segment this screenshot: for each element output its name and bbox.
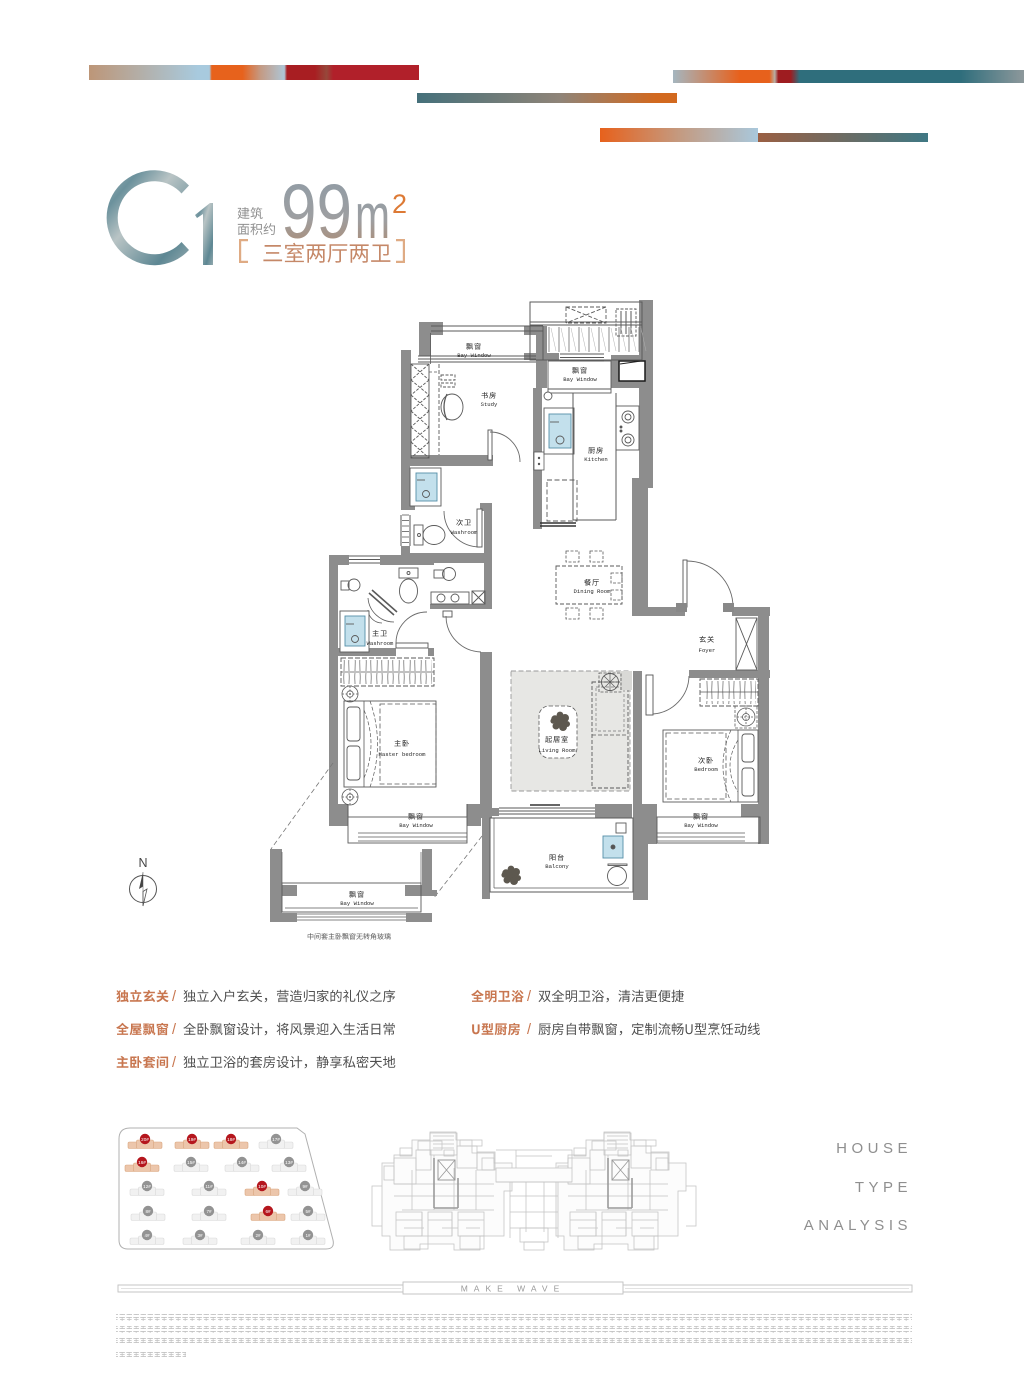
svg-text:Bay Window: Bay Window (340, 900, 374, 907)
svg-text:/: / (527, 989, 532, 1005)
svg-text:2: 2 (392, 189, 407, 219)
svg-text:Balcony: Balcony (545, 863, 569, 870)
svg-text:19#: 19# (188, 1137, 196, 1142)
svg-text:Study: Study (481, 401, 498, 408)
svg-text:Bay Window: Bay Window (563, 376, 597, 383)
svg-text:3#: 3# (197, 1233, 203, 1238)
svg-text:Washroom: Washroom (367, 640, 394, 647)
svg-text:5#: 5# (305, 1209, 311, 1214)
svg-text:99: 99 (281, 169, 352, 255)
svg-text:Master bedroom: Master bedroom (379, 751, 427, 758)
svg-text:Dining Room: Dining Room (574, 588, 612, 595)
svg-text:Living Room: Living Room (539, 747, 577, 754)
svg-text:16#: 16# (138, 1160, 146, 1165)
svg-text:Foyer: Foyer (699, 647, 716, 654)
svg-text:6#: 6# (265, 1209, 271, 1214)
svg-text:MAKE WAVE: MAKE WAVE (461, 1284, 566, 1294)
svg-text:8#: 8# (145, 1209, 151, 1214)
svg-text:7#: 7# (206, 1209, 212, 1214)
svg-text:Washroom: Washroom (451, 529, 478, 536)
svg-text:/: / (172, 1055, 177, 1071)
svg-text:/: / (527, 1022, 532, 1038)
svg-text:4#: 4# (144, 1233, 150, 1238)
svg-text:1#: 1# (305, 1233, 311, 1238)
svg-text:12#: 12# (143, 1184, 151, 1189)
svg-text:2#: 2# (255, 1233, 261, 1238)
svg-text:Bay Window: Bay Window (684, 822, 718, 829)
svg-text:Kitchen: Kitchen (584, 456, 608, 463)
svg-text:ANALYSIS: ANALYSIS (804, 1217, 912, 1234)
svg-text:18#: 18# (227, 1137, 235, 1142)
svg-text:N: N (138, 856, 147, 870)
svg-text:14#: 14# (238, 1160, 246, 1165)
svg-text:/: / (172, 1022, 177, 1038)
svg-text:Bay Window: Bay Window (399, 822, 433, 829)
svg-text:Bay Window: Bay Window (457, 352, 491, 359)
svg-text:17#: 17# (272, 1137, 280, 1142)
svg-text:20#: 20# (141, 1137, 149, 1142)
svg-text:m: m (355, 180, 390, 252)
svg-text:TYPE: TYPE (855, 1179, 912, 1196)
svg-text:Bedroom: Bedroom (694, 766, 718, 773)
svg-text:10#: 10# (258, 1184, 266, 1189)
svg-text:13#: 13# (285, 1160, 293, 1165)
svg-text:/: / (172, 989, 177, 1005)
svg-text:9#: 9# (302, 1184, 308, 1189)
svg-text:HOUSE: HOUSE (836, 1140, 912, 1157)
svg-text:11#: 11# (205, 1184, 213, 1189)
svg-text:15#: 15# (187, 1160, 195, 1165)
